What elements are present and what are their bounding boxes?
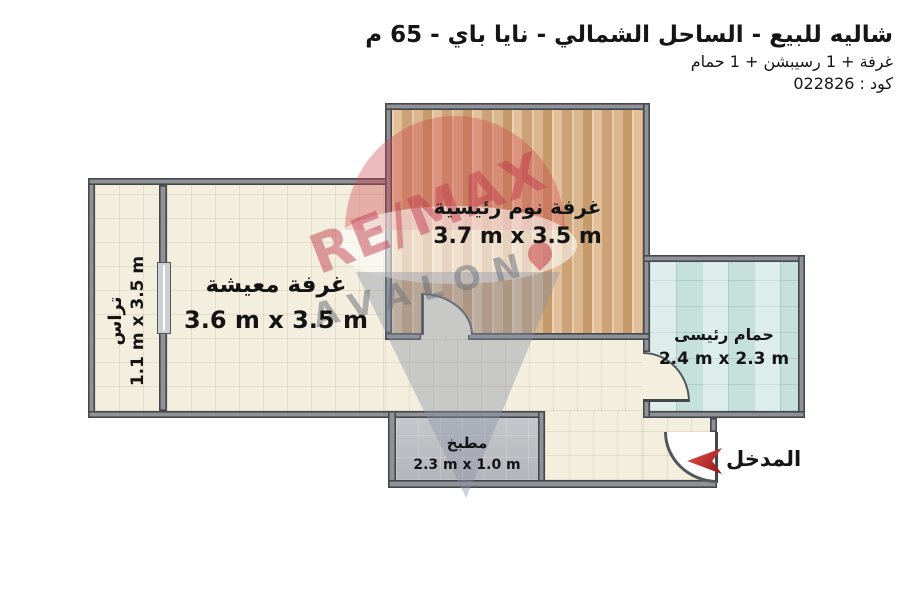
terrace-name: تراس (104, 236, 127, 406)
bedroom-label: غرفة نوم رئيسية 3.7 m x 3.5 m (392, 192, 643, 252)
wall-bottom-living-kitchen (88, 411, 545, 418)
bathroom-name: حمام رئيسى (650, 323, 798, 347)
terrace-label: تراس 1.1 m x 3.5 m (104, 236, 150, 406)
kitchen-name: مطبخ (396, 432, 538, 454)
listing-code: كود : 022826 (365, 73, 893, 95)
wall-bottom (388, 480, 717, 488)
wall-bedroom-bottom-right (468, 333, 650, 340)
wall-bedroom-right (643, 103, 650, 352)
wall-terrace-left (88, 178, 95, 418)
living-room-name: غرفة معيشة (167, 268, 385, 302)
wall-kitchen-left (388, 411, 396, 488)
wall-bedroom-top (385, 103, 650, 110)
floor-plan-page: شاليه للبيع - الساحل الشمالي - نايا باي … (0, 0, 900, 599)
wall-bathroom-top (643, 255, 805, 262)
kitchen-dimensions: 2.3 m x 1.0 m (396, 454, 538, 476)
listing-subtitle: غرفة + 1 رسيبشن + 1 حمام (365, 50, 893, 73)
wall-top (88, 178, 392, 185)
listing-header: شاليه للبيع - الساحل الشمالي - نايا باي … (365, 20, 893, 95)
wall-bathroom-right (798, 255, 805, 418)
wall-entry-right-stub (710, 418, 717, 432)
wall-bedroom-left (385, 103, 392, 333)
living-room-dimensions: 3.6 m x 3.5 m (167, 302, 385, 338)
hallway-floor (385, 340, 643, 411)
wall-bathroom-bottom (643, 411, 805, 418)
listing-title: شاليه للبيع - الساحل الشمالي - نايا باي … (365, 20, 893, 50)
bedroom-dimensions: 3.7 m x 3.5 m (392, 222, 643, 252)
bedroom-name: غرفة نوم رئيسية (392, 192, 643, 222)
bathroom-dimensions: 2.4 m x 2.3 m (650, 347, 798, 372)
terrace-dimensions: 1.1 m x 3.5 m (127, 236, 150, 406)
entrance-label: المدخل (726, 447, 801, 471)
bathroom-label: حمام رئيسى 2.4 m x 2.3 m (650, 323, 798, 372)
wall-kitchen-right (538, 411, 545, 488)
kitchen-label: مطبخ 2.3 m x 1.0 m (396, 432, 538, 476)
wall-bedroom-bottom-left (385, 333, 421, 340)
living-room-label: غرفة معيشة 3.6 m x 3.5 m (167, 268, 385, 338)
